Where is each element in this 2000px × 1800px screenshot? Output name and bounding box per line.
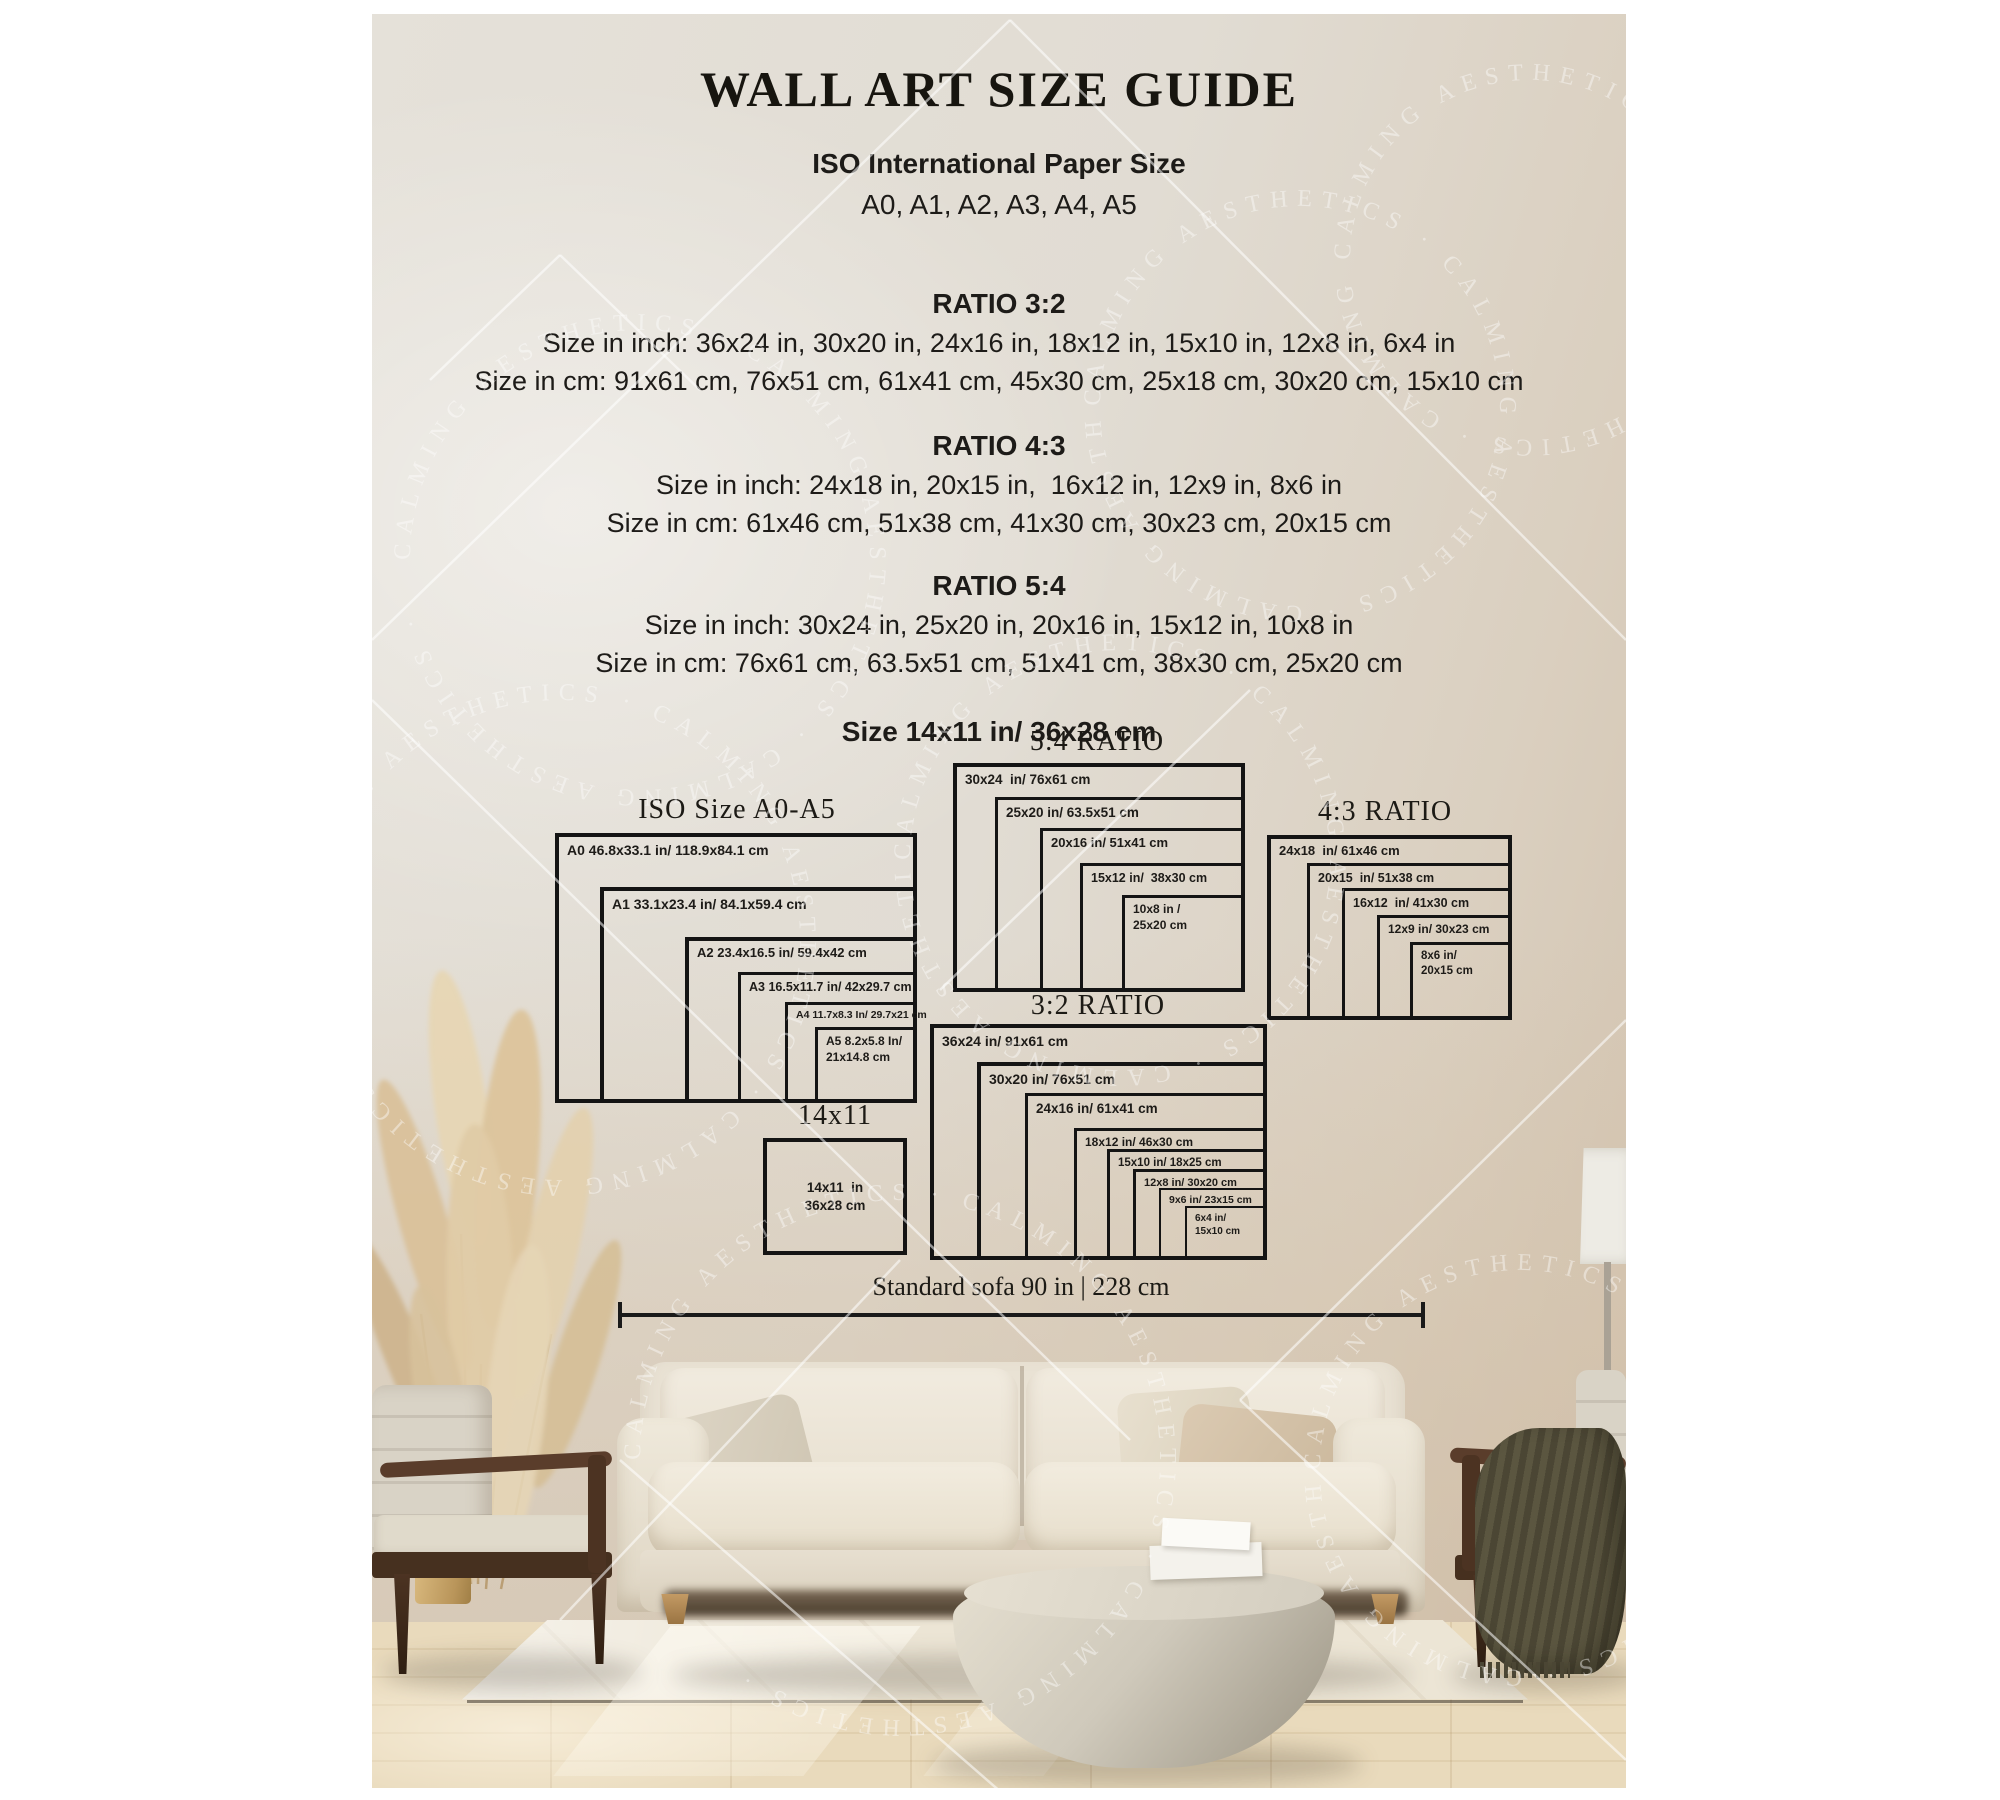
size-box-label: A4 11.7x8.3 In/ 29.7x21 cm: [796, 1009, 927, 1023]
ratio-32-cm: Size in cm: 91x61 cm, 76x51 cm, 61x41 cm…: [475, 366, 1524, 397]
wall-art-size-guide-poster: WALL ART SIZE GUIDE ISO International Pa…: [372, 14, 1626, 1788]
diagram-heading-size-14x11: 14x11: [798, 1100, 872, 1132]
size-box-ratio-5-4: 10x8 in /25x20 cm: [1122, 895, 1245, 992]
diagram-heading-ratio-4-3: 4:3 RATIO: [1318, 796, 1452, 828]
poster-title: WALL ART SIZE GUIDE: [700, 60, 1298, 118]
ratio-54-cm: Size in cm: 76x61 cm, 63.5x51 cm, 51x41 …: [595, 648, 1402, 679]
size-box-label: 15x12 in/ 38x30 cm: [1091, 870, 1207, 886]
size-box-iso-a0-a5: A5 8.2x5.8 In/21x14.8 cm: [815, 1027, 917, 1103]
sofa-measure-label: Standard sofa 90 in | 228 cm: [873, 1272, 1170, 1302]
size-box-label: 14x11 in36x28 cm: [805, 1179, 866, 1214]
ratio-43-inches: Size in inch: 24x18 in, 20x15 in, 16x12 …: [656, 470, 1342, 501]
ratio-54-inches: Size in inch: 30x24 in, 25x20 in, 20x16 …: [645, 610, 1353, 641]
product-image: WALL ART SIZE GUIDE ISO International Pa…: [0, 0, 2000, 1800]
size-box-size-14x11: 14x11 in36x28 cm: [763, 1138, 907, 1255]
sofa-measure-line: [618, 1313, 1425, 1317]
ratio-32-inches: Size in inch: 36x24 in, 30x20 in, 24x16 …: [543, 328, 1456, 359]
ratio-54-heading: RATIO 5:4: [932, 570, 1065, 602]
size-box-label: A5 8.2x5.8 In/21x14.8 cm: [826, 1034, 902, 1065]
ratio-43-cm: Size in cm: 61x46 cm, 51x38 cm, 41x30 cm…: [607, 508, 1392, 539]
diagram-heading-ratio-3-2: 3:2 RATIO: [1031, 990, 1165, 1022]
size-box-label: 8x6 in/20x15 cm: [1421, 949, 1473, 979]
size-box-label: 6x4 in/15x10 cm: [1195, 1212, 1240, 1238]
ratio-32-heading: RATIO 3:2: [932, 288, 1065, 320]
diagram-heading-ratio-5-4: 5:4 RATIO: [1030, 726, 1164, 758]
size-box-label: 20x15 in/ 51x38 cm: [1318, 870, 1434, 886]
size-box-label: 24x18 in/ 61x46 cm: [1279, 843, 1400, 860]
iso-sizes-list: A0, A1, A2, A3, A4, A5: [861, 189, 1137, 221]
measure-end-cap-right: [1421, 1302, 1425, 1328]
size-box-label: 20x16 in/ 51x41 cm: [1051, 835, 1168, 852]
size-box-label: A0 46.8x33.1 in/ 118.9x84.1 cm: [567, 841, 769, 859]
size-box-label: A3 16.5x11.7 in/ 42x29.7 cm: [749, 979, 912, 995]
size-box-label: 12x9 in/ 30x23 cm: [1388, 922, 1489, 938]
size-box-label: A1 33.1x23.4 in/ 84.1x59.4 cm: [612, 895, 807, 913]
measure-end-cap-left: [618, 1302, 622, 1328]
size-box-label: 30x20 in/ 76x51 cm: [989, 1070, 1115, 1088]
ratio-43-heading: RATIO 4:3: [932, 430, 1065, 462]
size-guide-graphics: WALL ART SIZE GUIDE ISO International Pa…: [372, 14, 1626, 1788]
size-box-label: 25x20 in/ 63.5x51 cm: [1006, 804, 1139, 822]
size-box-label: 16x12 in/ 41x30 cm: [1353, 895, 1469, 911]
size-box-label: 10x8 in /25x20 cm: [1133, 902, 1187, 933]
size-box-label: 24x16 in/ 61x41 cm: [1036, 1100, 1158, 1118]
size-box-label: A2 23.4x16.5 in/ 59.4x42 cm: [697, 945, 867, 962]
size-box-label: 30x24 in/ 76x61 cm: [965, 771, 1090, 789]
iso-header: ISO International Paper Size: [812, 148, 1185, 180]
size-box-ratio-4-3: 8x6 in/20x15 cm: [1410, 942, 1512, 1020]
size-box-ratio-3-2: 6x4 in/15x10 cm: [1185, 1206, 1267, 1260]
diagram-heading-iso-a0-a5: ISO Size A0-A5: [638, 794, 836, 826]
size-box-label: 36x24 in/ 91x61 cm: [942, 1032, 1068, 1050]
